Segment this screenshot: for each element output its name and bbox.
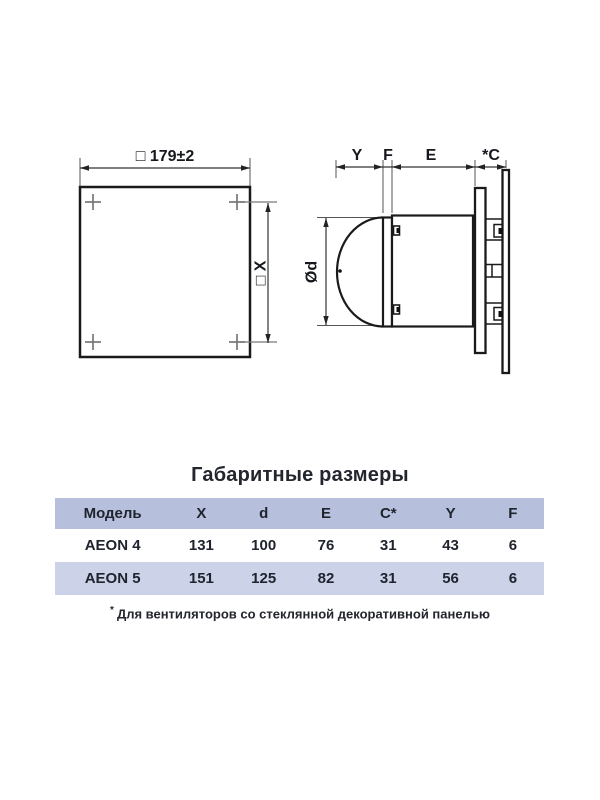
- decorative-panel-outline: [503, 170, 510, 373]
- arrowhead-up: [265, 203, 270, 212]
- table-row: AEON 4 131 100 76 31 43 6: [55, 529, 544, 562]
- arrowhead-left: [80, 165, 89, 170]
- table-row: AEON 5 151 125 82 31 56 6: [55, 562, 544, 595]
- arrowhead-right: [374, 164, 383, 169]
- dimensions-table: Модель X d E C* Y F AEON 4 131 100 76 31…: [55, 498, 544, 595]
- panel-clips: [486, 219, 503, 324]
- arrowhead-left: [392, 164, 401, 169]
- front-width-dimension-label: □ 179±2: [136, 148, 195, 165]
- front-panel-outline: [80, 187, 250, 357]
- value-cell: 131: [170, 537, 232, 554]
- column-header-model: Модель: [55, 505, 170, 522]
- column-header-y: Y: [419, 505, 481, 522]
- column-header-d: d: [233, 505, 295, 522]
- center-dot: [338, 269, 342, 273]
- fan-body-outline: [392, 216, 473, 327]
- column-header-c: C*: [357, 505, 419, 522]
- arrowhead-right: [466, 164, 475, 169]
- page: □ 179±2: [0, 0, 600, 800]
- value-cell: 31: [357, 537, 419, 554]
- value-cell: 43: [419, 537, 481, 554]
- value-cell: 31: [357, 570, 419, 587]
- value-cell: 6: [482, 570, 544, 587]
- value-cell: 76: [295, 537, 357, 554]
- table-footnote: *Для вентиляторов со стеклянной декорати…: [0, 605, 600, 621]
- arrowhead-up: [323, 218, 328, 227]
- column-header-f: F: [482, 505, 544, 522]
- model-cell: AEON 5: [55, 570, 170, 587]
- arrowhead-right: [241, 165, 250, 170]
- side-dim-f-label: F: [383, 147, 393, 164]
- arrowhead-down: [323, 316, 328, 325]
- value-cell: 56: [419, 570, 481, 587]
- front-hole-spacing-dimension-label: □ X: [253, 260, 270, 285]
- model-cell: AEON 4: [55, 537, 170, 554]
- column-header-e: E: [295, 505, 357, 522]
- side-view: Y F E *C Ød: [304, 147, 510, 373]
- value-cell: 125: [233, 570, 295, 587]
- arrowhead-left: [336, 164, 345, 169]
- latch-fill: [397, 228, 401, 233]
- side-dim-c-label: *C: [482, 147, 500, 164]
- footnote-text: Для вентиляторов со стеклянной декоратив…: [117, 606, 490, 621]
- panel-clip-middle: [486, 265, 503, 278]
- table-header-row: Модель X d E C* Y F: [55, 498, 544, 529]
- mounting-plate-outline: [475, 188, 486, 353]
- value-cell: 151: [170, 570, 232, 587]
- panel-clip-bottom: [486, 303, 503, 324]
- arrowhead-left: [476, 164, 485, 169]
- side-dim-e-label: E: [426, 147, 437, 164]
- dimension-diagram: □ 179±2: [0, 0, 600, 440]
- flange-outline: [383, 218, 392, 327]
- duct-dome-outline: [337, 218, 383, 327]
- front-view: □ 179±2: [80, 148, 277, 357]
- value-cell: 6: [482, 537, 544, 554]
- panel-clip-top: [486, 219, 503, 240]
- value-cell: 100: [233, 537, 295, 554]
- latch-fill: [397, 307, 401, 312]
- footnote-marker: *: [110, 605, 114, 616]
- column-header-x: X: [170, 505, 232, 522]
- side-dim-y-label: Y: [352, 147, 363, 164]
- side-diameter-dimension-label: Ød: [304, 261, 321, 283]
- table-title: Габаритные размеры: [0, 464, 600, 487]
- value-cell: 82: [295, 570, 357, 587]
